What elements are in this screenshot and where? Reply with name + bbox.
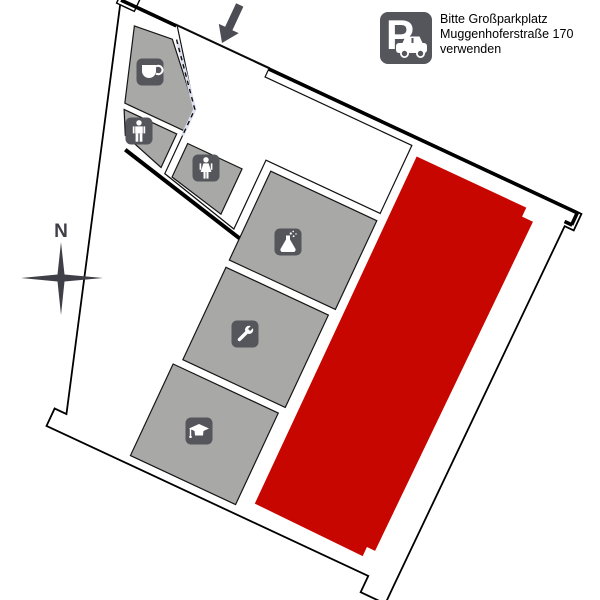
- coffee-cup-icon: [137, 59, 164, 86]
- flask-icon: [275, 229, 302, 256]
- parking-note-line1: Bitte Großparkplatz: [440, 12, 548, 26]
- parking-note-text: Bitte Großparkplatz Muggenhoferstraße 17…: [440, 12, 573, 56]
- compass-north-label: N: [54, 221, 68, 242]
- floor-plan: N P Bitte Großparkplatz Muggenhoferstraß…: [0, 0, 600, 600]
- parking-sign: P Bitte Großparkplatz Muggenhoferstraße …: [380, 11, 573, 64]
- woman-icon: [193, 155, 220, 182]
- parking-note-line2: Muggenhoferstraße 170: [440, 27, 573, 41]
- wrench-icon: [232, 321, 259, 348]
- man-icon: [126, 118, 153, 145]
- graduation-cap-icon: [186, 418, 213, 445]
- parking-note-line3: verwenden: [440, 42, 501, 56]
- entrance-arrow-icon: [212, 0, 250, 47]
- building: [0, 0, 584, 600]
